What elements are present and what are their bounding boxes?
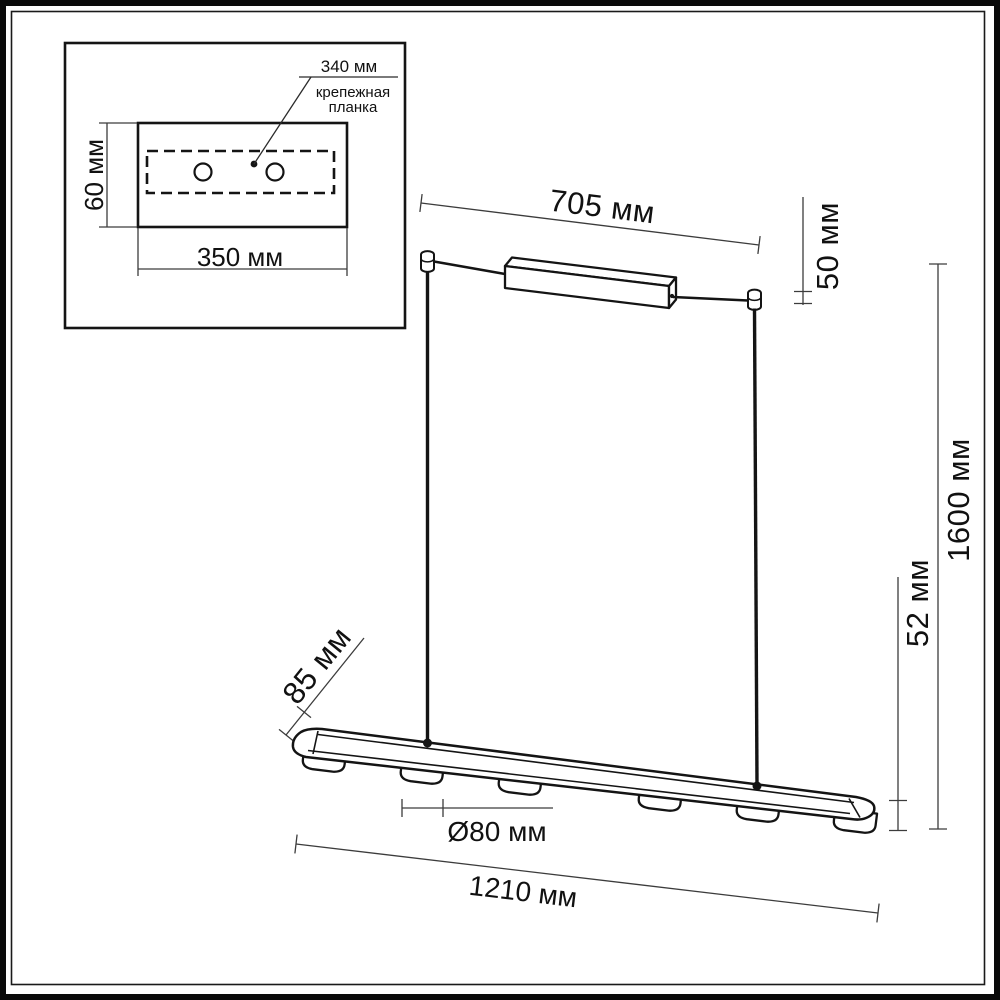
dim-label-hole-spacing: 340 мм — [321, 57, 377, 76]
dim-label-spot-diameter: Ø80 мм — [447, 816, 546, 847]
cable-ball-joint-left — [423, 739, 432, 748]
dim-label-suspension-drop: 1600 мм — [941, 438, 976, 562]
dim-label-fixture-height: 52 мм — [900, 559, 935, 647]
mounting-plate-inset: 340 мм крепежная планка 60 мм 350 мм — [65, 43, 405, 328]
dim-bar-length: 1210 мм — [295, 835, 879, 923]
dim-label-grip-height: 50 мм — [810, 202, 845, 290]
ceiling-canopy — [505, 258, 676, 309]
dim-fixture-height: 52 мм — [889, 559, 935, 831]
dim-grip-height: 50 мм — [794, 197, 845, 305]
dim-label-plate-width: 350 мм — [197, 242, 283, 272]
drawing-canvas: 340 мм крепежная планка 60 мм 350 мм 705… — [0, 0, 1000, 1000]
dim-spot-diameter: Ø80 мм — [402, 799, 553, 847]
suspension-wire-left — [434, 262, 505, 275]
light-bar — [293, 729, 874, 820]
dim-label-canopy-span: 705 мм — [548, 183, 657, 231]
cable-grip-left — [421, 251, 434, 272]
dim-suspension-drop: 1600 мм — [929, 264, 976, 829]
dim-label-bar-length: 1210 мм — [467, 870, 578, 914]
suspension-wire-right — [673, 297, 748, 301]
cable-grip-right — [748, 290, 761, 310]
dim-bar-depth: 85 мм — [275, 620, 364, 741]
technical-drawing: 340 мм крепежная планка 60 мм 350 мм 705… — [0, 0, 1000, 1000]
suspension-cable-right — [755, 309, 758, 785]
bar-bottom-face-line — [308, 751, 850, 814]
cable-ball-joint-right — [753, 782, 762, 791]
plate-name-line2: планка — [329, 99, 378, 116]
dim-label-plate-height: 60 мм — [79, 139, 109, 211]
dim-canopy-span: 705 мм — [420, 183, 760, 254]
